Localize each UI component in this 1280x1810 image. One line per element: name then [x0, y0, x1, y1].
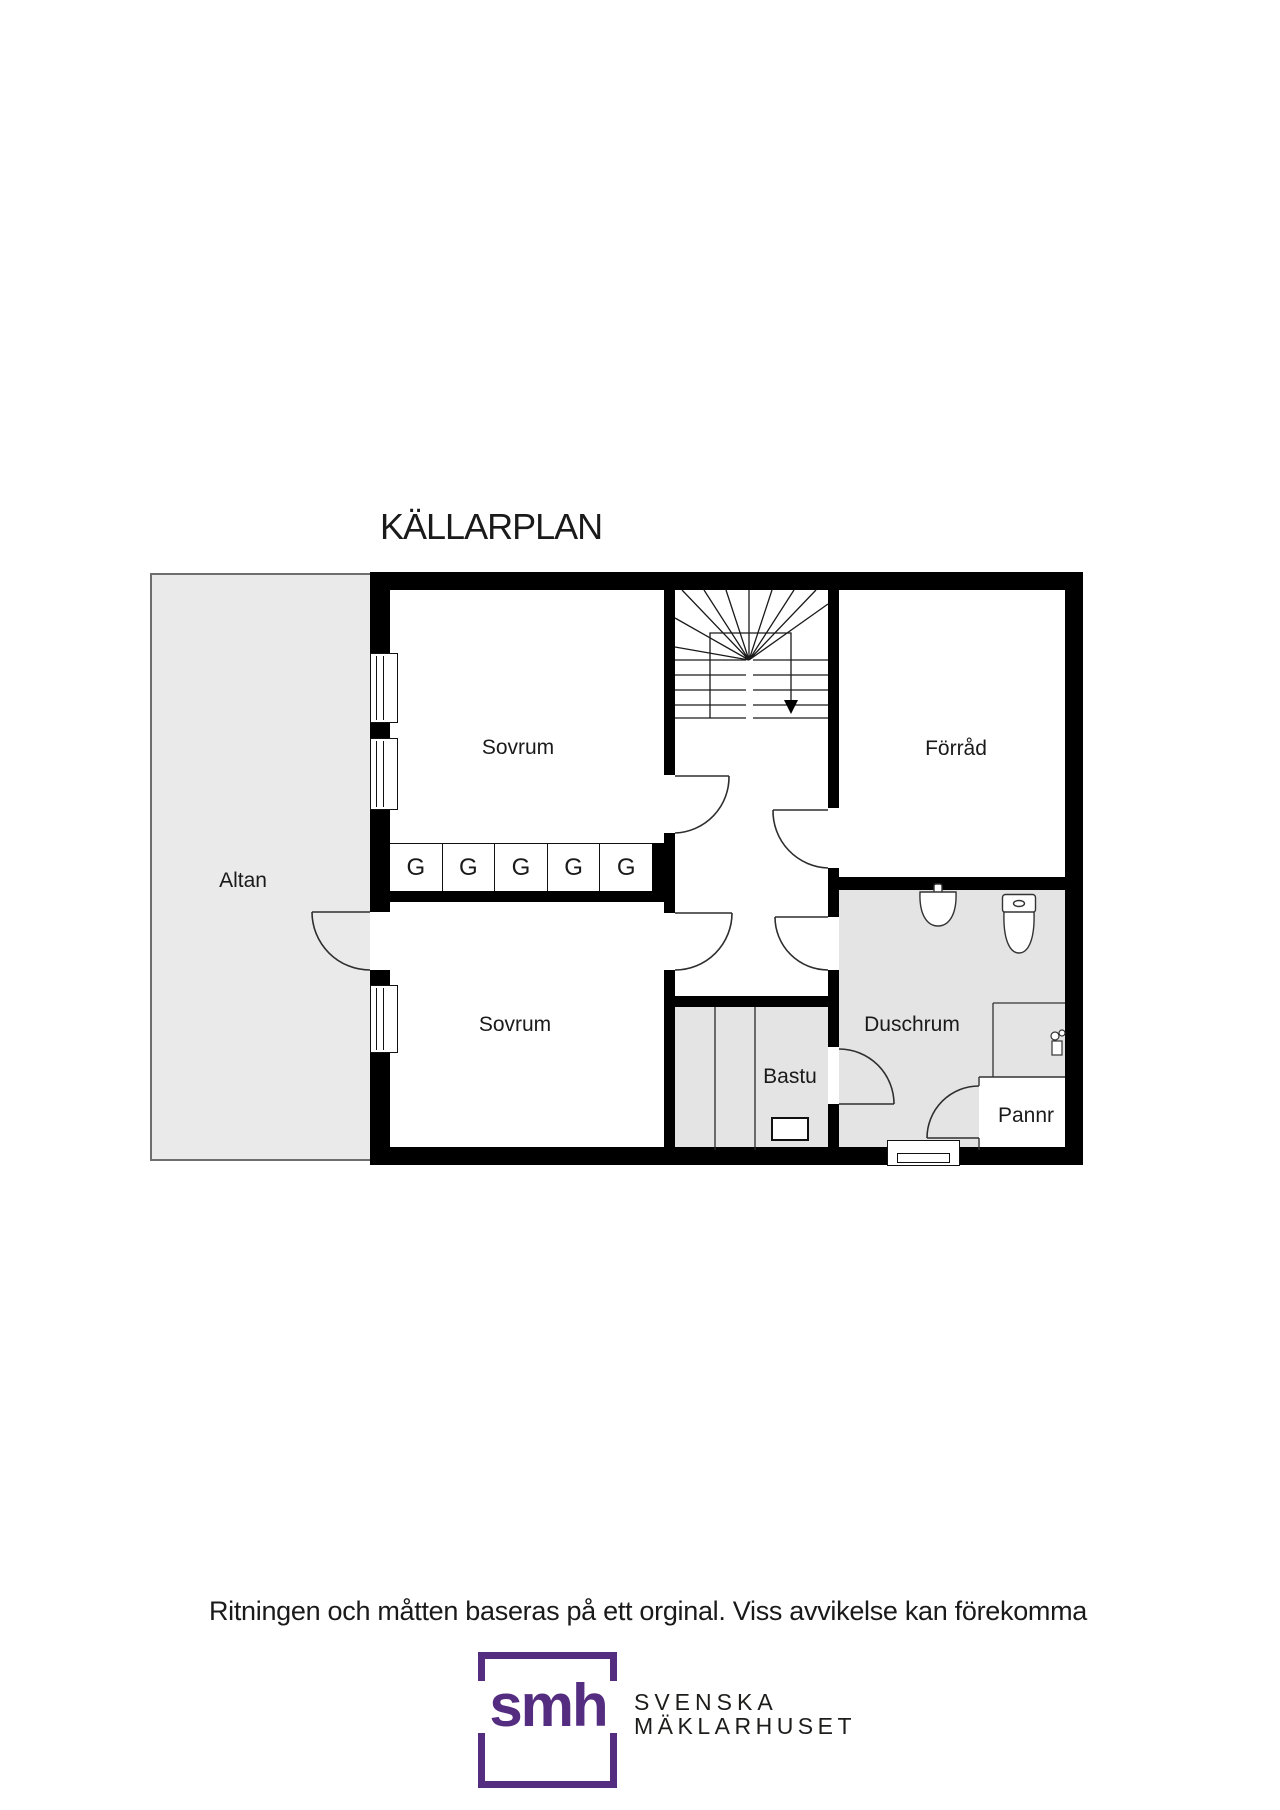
page-title: KÄLLARPLAN [380, 506, 602, 548]
door-arc-duschrum [775, 917, 828, 970]
wardrobe-letter: G [406, 854, 425, 882]
stairs-icon [675, 590, 828, 718]
wall [1065, 572, 1083, 1165]
wall [652, 843, 675, 891]
wall [839, 877, 1065, 890]
room-label-bastu: Bastu [730, 1064, 850, 1090]
wardrobe-letter: G [617, 854, 636, 882]
wardrobe-cell: G [599, 844, 652, 891]
door-arc-forrad [773, 810, 828, 868]
window-icon [370, 985, 398, 1053]
wardrobe-cell: G [442, 844, 495, 891]
wall [664, 970, 675, 1165]
window-icon [887, 1140, 960, 1166]
wall [664, 590, 675, 775]
stairs-down-arrow-icon [784, 700, 798, 714]
wardrobe-cell: G [494, 844, 547, 891]
room-label-altan: Altan [183, 868, 303, 894]
wardrobe-letter: G [512, 854, 531, 882]
logo-brand-text: SVENSKA MÄKLARHUSET [634, 1690, 856, 1738]
logo-monogram: smh [471, 1681, 625, 1733]
door-arc-sovrum-2 [675, 913, 732, 970]
wardrobe-cell: G [390, 844, 442, 891]
wardrobe-letter: G [564, 854, 583, 882]
room-label-forrad: Förråd [896, 736, 1016, 762]
window-icon [370, 653, 398, 723]
wardrobe-row: G G G G G [390, 843, 652, 891]
wall [828, 590, 839, 808]
wardrobe-letter: G [459, 854, 478, 882]
logo-brand-line1: SVENSKA [634, 1690, 856, 1714]
room-label-sovrum-1: Sovrum [458, 735, 578, 761]
wall [370, 572, 1083, 590]
terrace-floor [150, 573, 370, 1161]
wall [370, 1147, 1083, 1165]
room-label-duschrum: Duschrum [852, 1012, 972, 1038]
disclaimer-text: Ritningen och måtten baseras på ett orgi… [8, 1596, 1280, 1627]
window-icon [370, 738, 398, 810]
door-arc-sovrum-1 [675, 776, 729, 833]
wall [828, 970, 839, 1047]
logo-brand-line2: MÄKLARHUSET [634, 1714, 856, 1738]
wall [675, 996, 828, 1007]
floor-plan-page: KÄLLARPLAN G G G G G [0, 0, 1280, 1810]
terrace-door-opening [370, 912, 390, 970]
room-label-sovrum-2: Sovrum [455, 1012, 575, 1038]
wall [828, 1104, 839, 1165]
room-label-pannr: Pannr [966, 1103, 1086, 1129]
wall [390, 891, 675, 902]
wardrobe-cell: G [547, 844, 600, 891]
wall [828, 868, 839, 917]
